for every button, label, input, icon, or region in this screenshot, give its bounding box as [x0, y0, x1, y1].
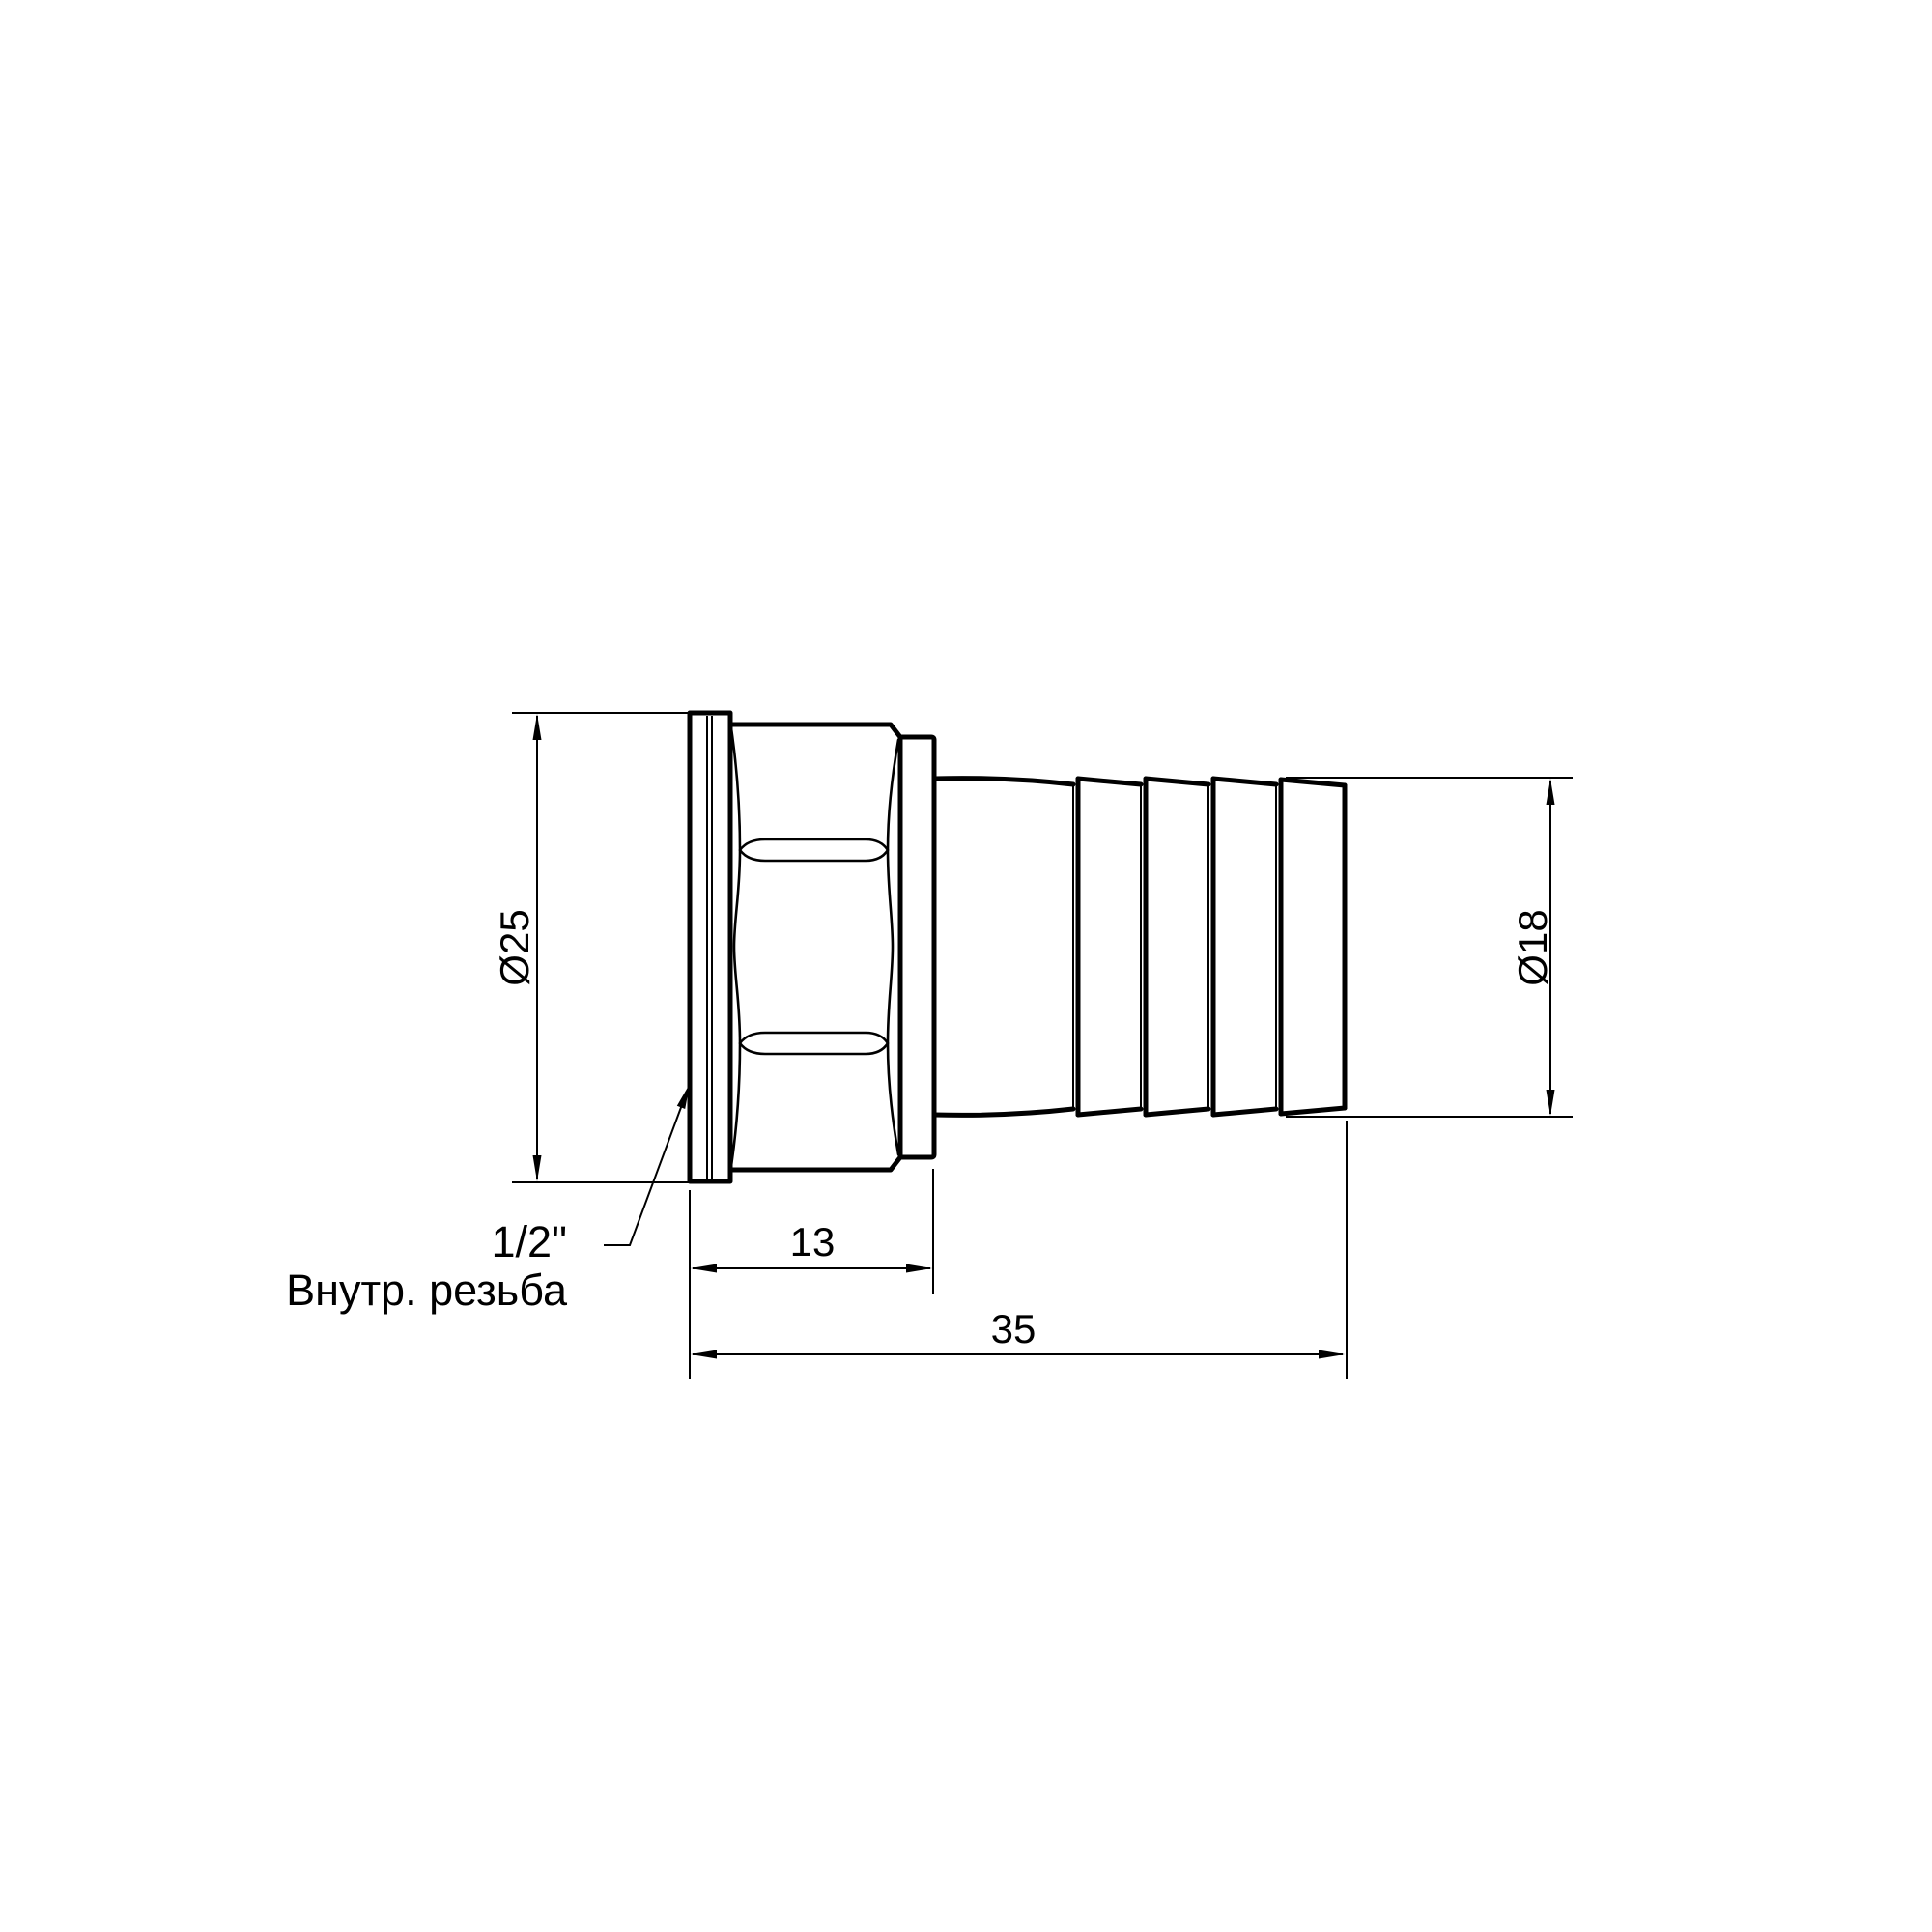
hose-barb-fitting-drawing: Ø25 Ø18 13 35 — [0, 0, 1932, 1932]
thread-callout: 1/2" Внутр. резьба — [286, 1084, 690, 1315]
hex-nut — [730, 724, 900, 1170]
hex-right-chamfer-curve — [888, 740, 898, 1154]
dim35-arrow-right-icon — [1319, 1350, 1345, 1359]
barb-cone2-bottom — [1078, 1109, 1141, 1115]
dim-diameter-25-label: Ø25 — [492, 909, 537, 985]
barb-cone4-bottom — [1213, 1109, 1276, 1115]
collar-outline — [900, 737, 934, 1157]
barb-cone2-top — [1078, 779, 1141, 784]
dim25-arrow-down-icon — [533, 1155, 542, 1181]
collar — [900, 737, 934, 1157]
hex-lower-facet-lines — [740, 1033, 888, 1054]
leader-line — [604, 1102, 683, 1245]
dim-length-35-label: 35 — [991, 1306, 1037, 1351]
hex-upper-facet-lines — [740, 839, 888, 861]
dim-diameter-18-label: Ø18 — [1510, 909, 1555, 985]
barb-cone3-bottom — [1146, 1109, 1208, 1115]
dim13-arrow-left-icon — [691, 1264, 717, 1273]
dim18-arrow-up-icon — [1547, 779, 1555, 805]
barb-cone4-top — [1213, 779, 1276, 784]
barb-end-bottom — [1281, 1108, 1345, 1114]
barb-cone1-top — [934, 779, 1073, 784]
thread-type-label: Внутр. резьба — [286, 1265, 568, 1315]
thread-size-label: 1/2" — [491, 1217, 567, 1266]
dim-length-13: 13 — [690, 1169, 933, 1379]
dim-length-13-label: 13 — [790, 1219, 836, 1264]
dim25-arrow-up-icon — [533, 714, 542, 740]
barb-cone3-top — [1146, 779, 1208, 784]
barb-cone1-bottom — [934, 1109, 1073, 1115]
flange-outline — [690, 713, 730, 1181]
dim-diameter-18: Ø18 — [1286, 778, 1573, 1117]
flange — [690, 713, 730, 1181]
technical-drawing-page: Ø25 Ø18 13 35 — [0, 0, 1932, 1932]
dim-diameter-25: Ø25 — [492, 713, 689, 1182]
dim35-arrow-left-icon — [691, 1350, 717, 1359]
hose-barb — [934, 779, 1345, 1116]
dim18-arrow-down-icon — [1547, 1090, 1555, 1116]
barb-end-top — [1281, 780, 1345, 785]
hex-outline — [730, 724, 900, 1170]
dim13-arrow-right-icon — [906, 1264, 932, 1273]
